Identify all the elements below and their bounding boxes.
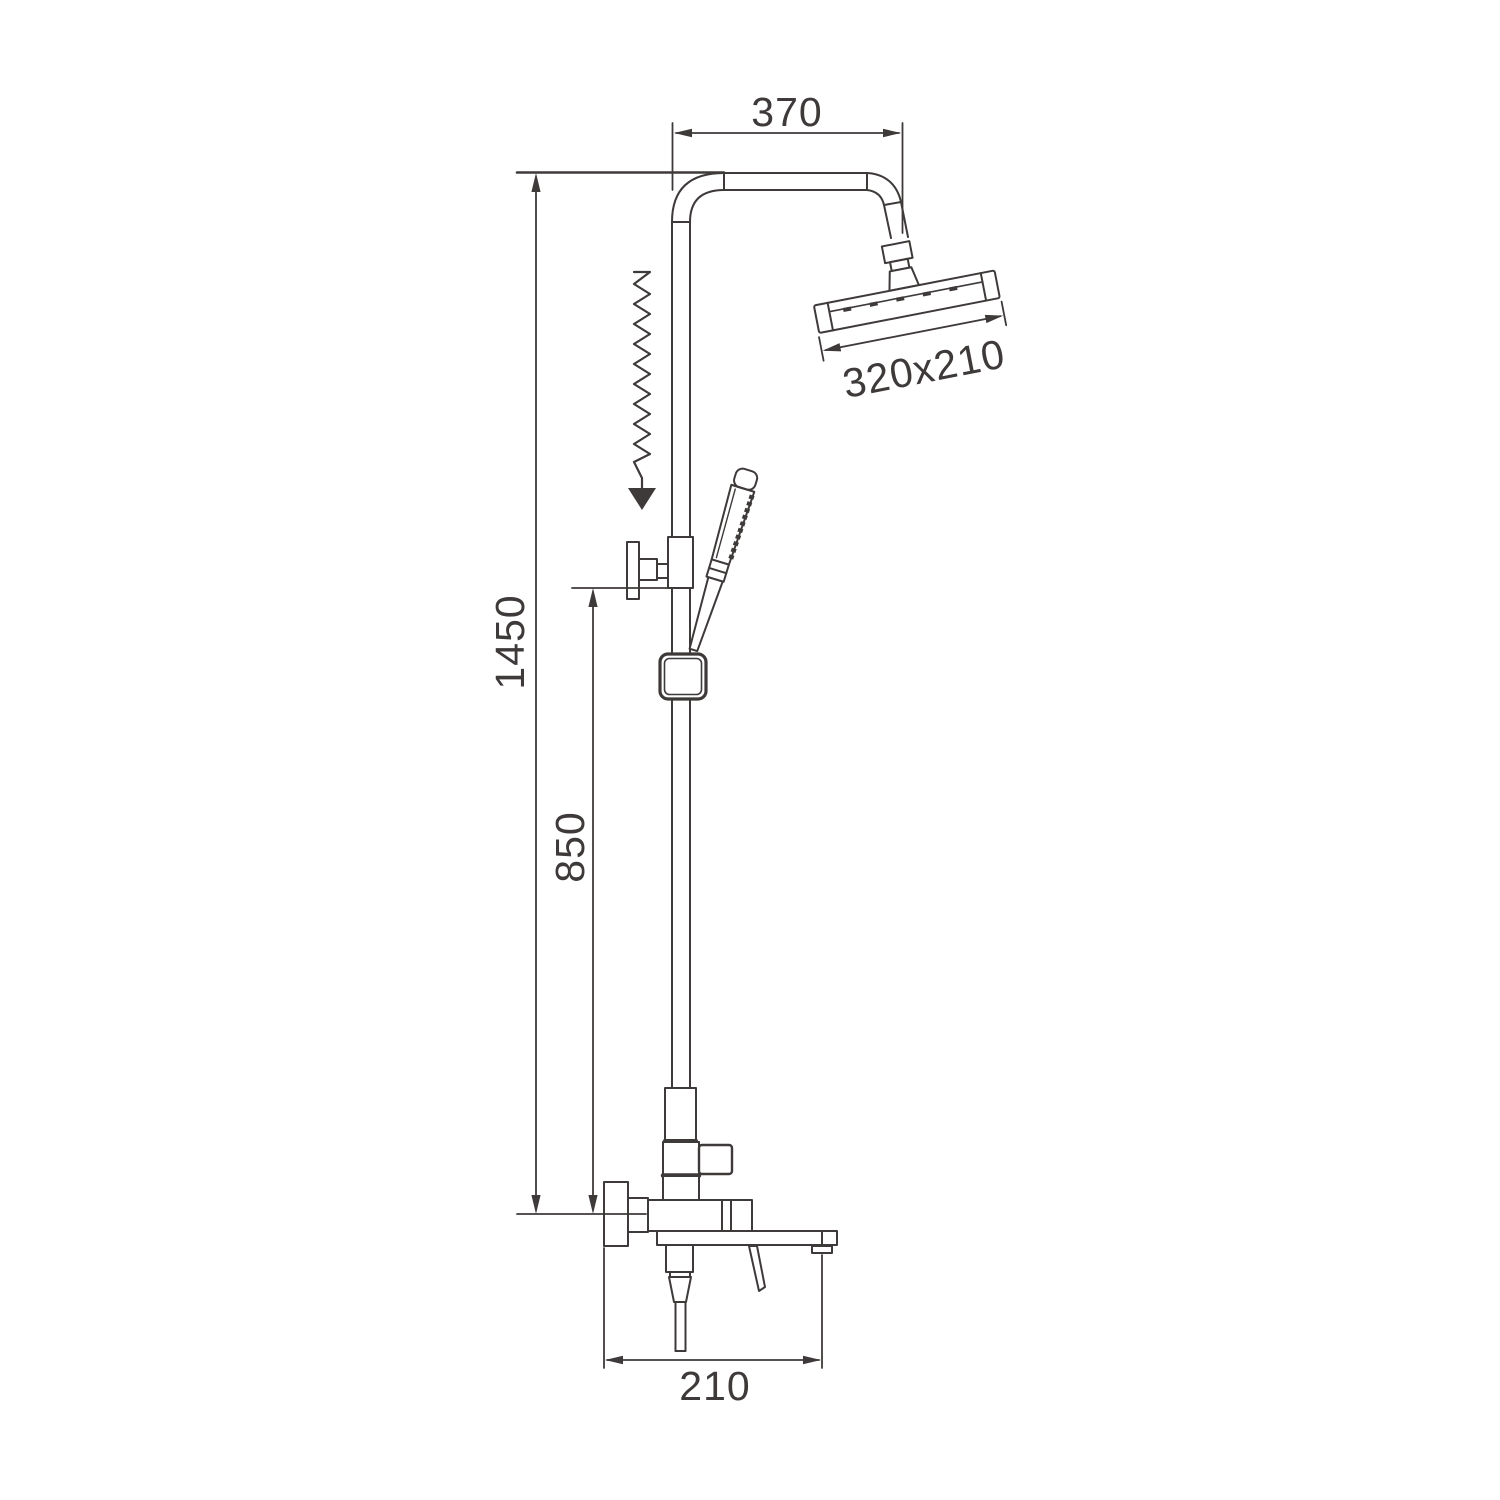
- mixer-valve: [604, 1088, 837, 1351]
- aerator: [812, 1246, 832, 1253]
- total-height-label: 1450: [487, 594, 533, 689]
- head-connector: [881, 241, 919, 291]
- rain-shower-head: 320x210: [813, 270, 1016, 410]
- shower-column-technical-drawing: 320x210: [0, 0, 1500, 1500]
- slide-direction-arrow: [628, 272, 656, 510]
- lever-handle: [749, 1246, 765, 1291]
- slider-bracket: [627, 537, 693, 599]
- lower-height-label: 850: [547, 811, 593, 882]
- tub-spout: [657, 1231, 837, 1245]
- arrow-down-icon: [628, 488, 656, 510]
- top-arm-width-label: 370: [751, 89, 822, 135]
- dimension-850: 850: [517, 588, 668, 1214]
- hand-shower-holder: [660, 654, 706, 699]
- diverter-knob: [699, 1145, 732, 1174]
- spout-width-label: 210: [679, 1363, 750, 1409]
- dimension-210: 210: [604, 1248, 822, 1409]
- dimension-370: 370: [673, 89, 903, 233]
